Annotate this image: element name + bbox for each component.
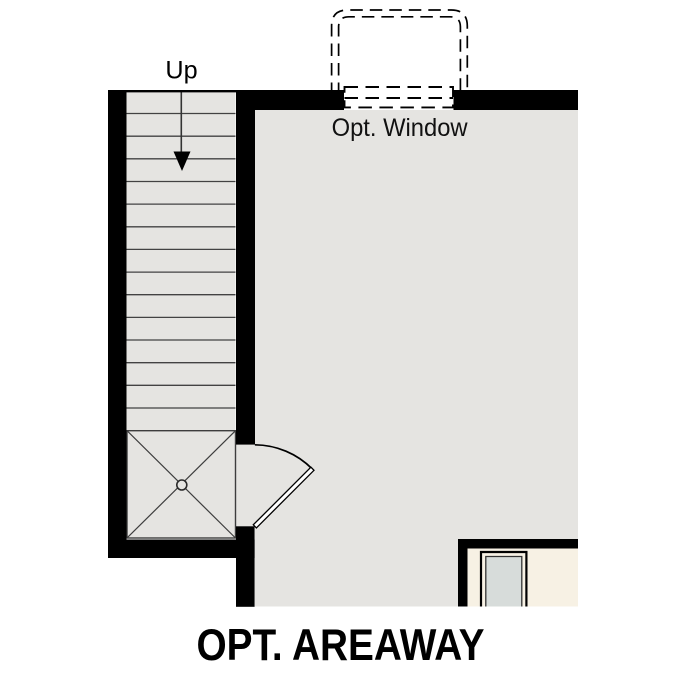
svg-text:Opt. Window: Opt. Window bbox=[332, 114, 469, 142]
svg-text:Up: Up bbox=[165, 56, 197, 84]
svg-text:OPT. AREAWAY: OPT. AREAWAY bbox=[197, 621, 485, 670]
